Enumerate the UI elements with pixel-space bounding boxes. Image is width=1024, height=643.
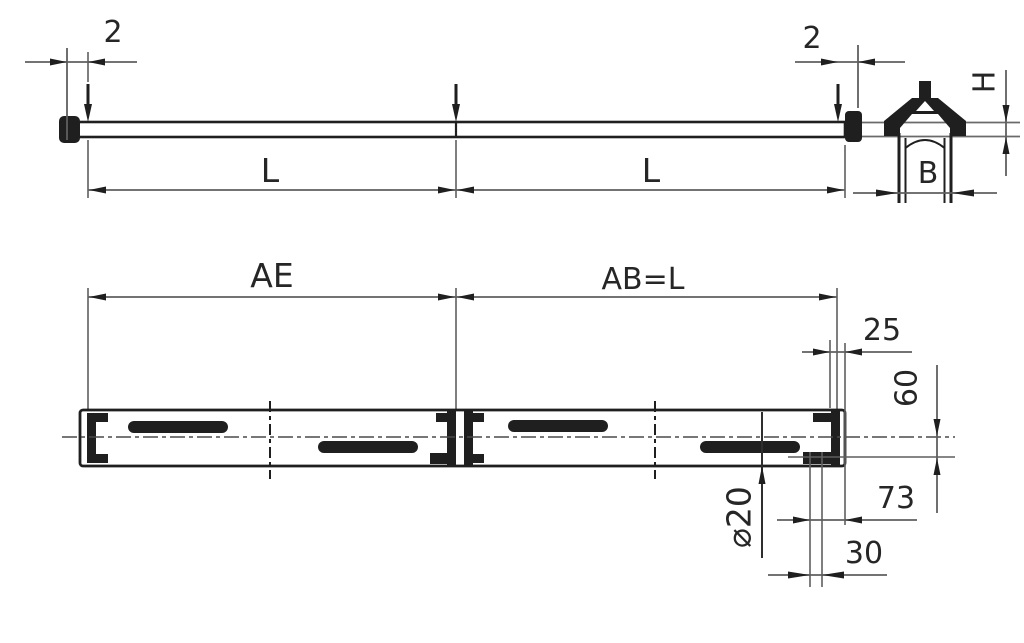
- pin-middle: [452, 84, 460, 122]
- dim-label-span-left: AE: [250, 256, 293, 295]
- dim-label-length-right: L: [642, 151, 661, 190]
- slot-2: [318, 441, 418, 453]
- pin-left: [84, 84, 92, 122]
- left-end-cap: [59, 116, 80, 143]
- rail-side-profile: [78, 122, 845, 137]
- dim-label-hole-diameter: ⌀20: [720, 486, 759, 548]
- dim-label-profile-width: B: [918, 156, 939, 191]
- dim-label-width-60: 60: [890, 369, 925, 407]
- dim-label-edge-distance: 73: [877, 481, 915, 516]
- slot-3: [508, 420, 608, 432]
- dim-profile-width: B: [853, 156, 997, 197]
- dim-gap-right: 2: [795, 21, 905, 108]
- rail-dimension-drawing: 2 2 L L: [0, 0, 1024, 643]
- dim-label-pitch: 30: [845, 536, 883, 571]
- dim-label-profile-height: H: [968, 71, 1003, 94]
- dim-pitch: 30: [768, 536, 887, 579]
- dim-label-end-offset: 25: [863, 313, 901, 348]
- technical-drawing-canvas: 2 2 L L: [0, 0, 1024, 643]
- h-extension-lines: [852, 123, 1020, 137]
- slot-4: [700, 441, 800, 453]
- dim-edge-distance: 73: [777, 481, 917, 524]
- rail-plan-body: [80, 410, 845, 466]
- dim-label-gap-left: 2: [103, 15, 122, 50]
- pin-right: [834, 84, 842, 122]
- dim-label-gap-right: 2: [802, 21, 821, 56]
- right-end-cap: [845, 111, 862, 142]
- plan-view: AE AB=L: [62, 256, 955, 587]
- dim-spans: AE AB=L: [88, 256, 837, 301]
- dim-label-length-left: L: [261, 151, 280, 190]
- slot-1: [128, 421, 228, 433]
- dim-label-span-right: AB=L: [602, 262, 685, 297]
- side-view: 2 2 L L: [25, 15, 1020, 198]
- dim-lengths: L L: [88, 140, 845, 198]
